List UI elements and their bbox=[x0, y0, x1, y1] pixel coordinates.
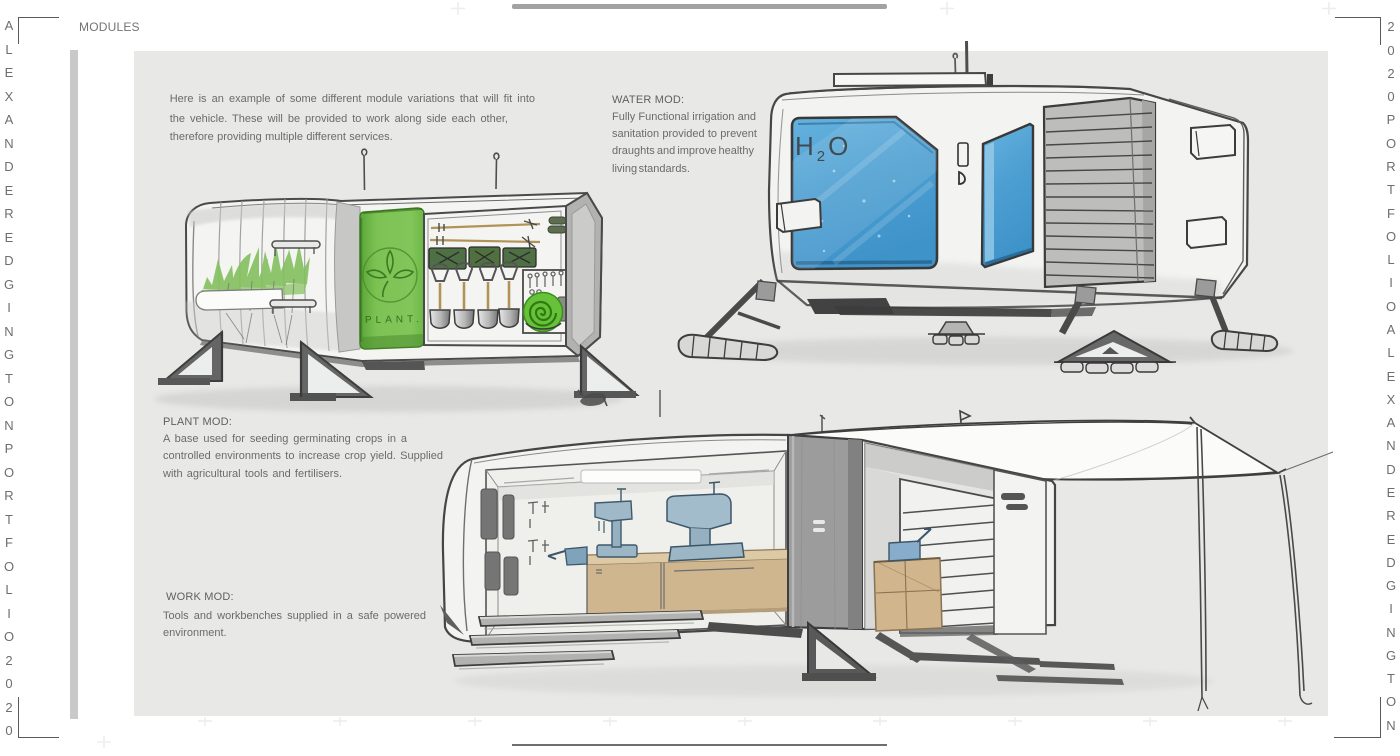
svg-text:PLANT.: PLANT. bbox=[365, 314, 423, 326]
